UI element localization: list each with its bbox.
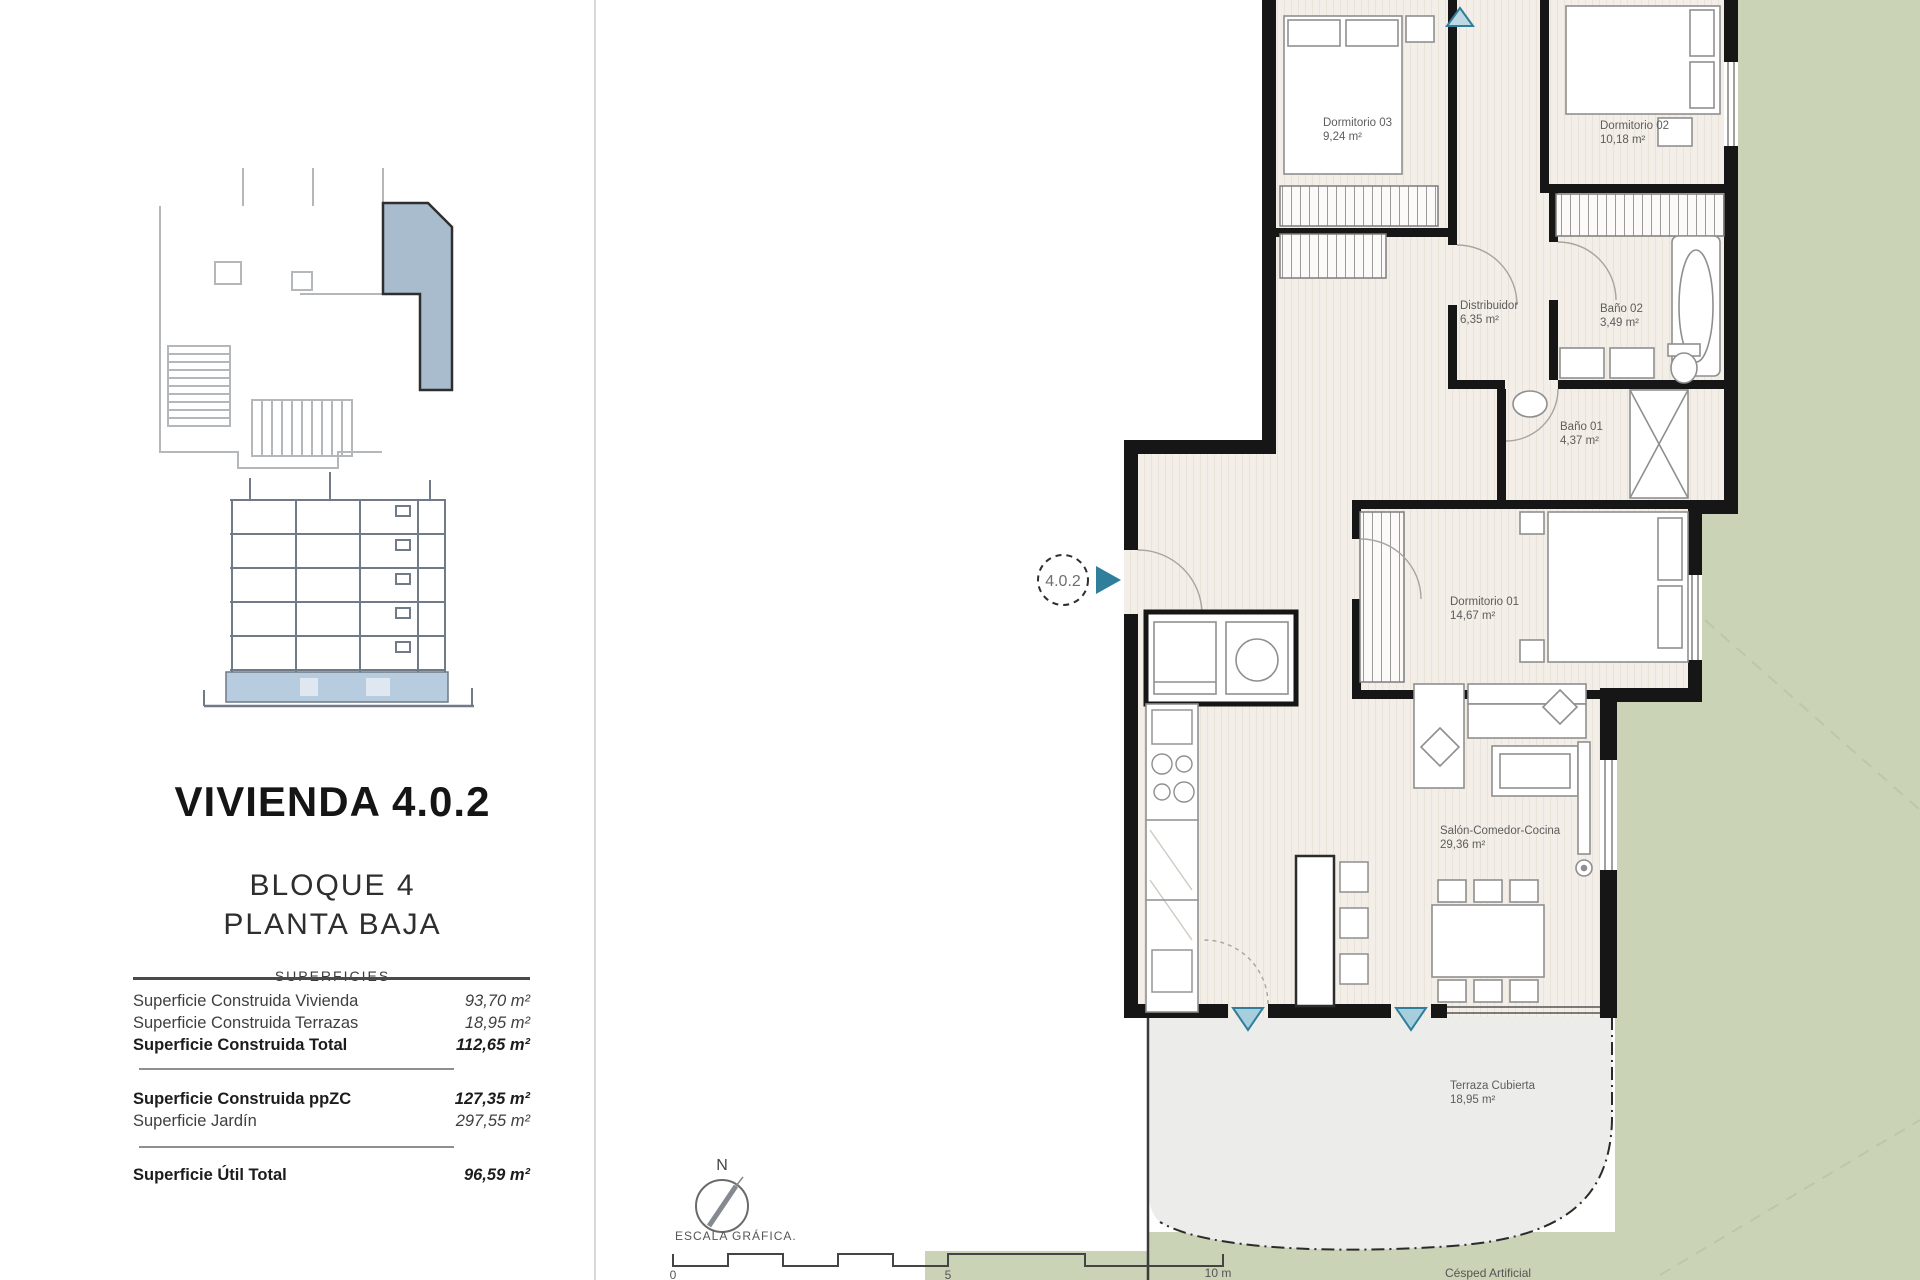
room-area-distribuidor: 6,35 m² <box>1460 314 1499 326</box>
section-band-gap <box>300 678 318 696</box>
surfaces-header: SUPERFICIES <box>60 968 605 984</box>
section-band-gap <box>366 678 390 696</box>
surface-value: 297,55 m² <box>456 1110 530 1132</box>
garden-label: Césped Artificial <box>1445 1266 1531 1280</box>
block-line: BLOQUE 4 <box>60 866 605 905</box>
room-label-terraza: Terraza Cubierta <box>1450 1080 1536 1092</box>
compass-north-label: N <box>716 1157 728 1174</box>
surfaces-table: Superficie Construida Vivienda 93,70 m² … <box>133 990 530 1186</box>
room-label-bano-02: Baño 02 <box>1600 303 1643 315</box>
surface-label: Superficie Construida Total <box>133 1034 347 1056</box>
room-label-bano-01: Baño 01 <box>1560 421 1603 433</box>
unit-marker-arrow-icon <box>1096 566 1121 594</box>
surface-row-ppzc: Superficie Construida ppZC 127,35 m² <box>133 1088 530 1110</box>
site-key-plan <box>160 168 383 468</box>
page-title: VIVIENDA 4.0.2 <box>60 778 605 826</box>
surface-row: Superficie Construida Vivienda 93,70 m² <box>133 990 530 1012</box>
section-ground-floor-band <box>226 672 448 702</box>
room-area-dormitorio-03: 9,24 m² <box>1323 131 1362 143</box>
floor-plan-sheet: 4.0.2 Dormitorio 03 9,24 m² Dormitorio 0… <box>0 0 1920 1280</box>
terrace-floor <box>1148 1017 1612 1250</box>
info-panel: VIVIENDA 4.0.2 BLOQUE 4 PLANTA BAJA SUPE… <box>60 778 605 984</box>
scale-tick-10: 10 m <box>1205 1266 1232 1280</box>
room-area-terraza: 18,95 m² <box>1450 1094 1496 1106</box>
room-area-salon: 29,36 m² <box>1440 839 1486 851</box>
surface-label: Superficie Útil Total <box>133 1164 287 1186</box>
surface-value: 96,59 m² <box>464 1164 530 1186</box>
surface-row: Superficie Jardín 297,55 m² <box>133 1110 530 1132</box>
scale-tick-5: 5 <box>945 1268 952 1280</box>
room-area-dormitorio-01: 14,67 m² <box>1450 610 1496 622</box>
building-section <box>230 472 446 672</box>
scale-tick-0: 0 <box>670 1268 677 1280</box>
surface-row-total: Superficie Construida Total 112,65 m² <box>133 1034 530 1056</box>
surface-label: Superficie Construida Terrazas <box>133 1012 358 1034</box>
north-compass: N <box>696 1157 748 1232</box>
surface-value: 18,95 m² <box>465 1012 530 1034</box>
surface-row-util-total: Superficie Útil Total 96,59 m² <box>133 1164 530 1186</box>
room-label-dormitorio-01: Dormitorio 01 <box>1450 596 1519 608</box>
unit-marker-label: 4.0.2 <box>1045 573 1081 590</box>
room-area-bano-01: 4,37 m² <box>1560 435 1599 447</box>
table-divider <box>139 1146 454 1148</box>
floor-line: PLANTA BAJA <box>60 905 605 944</box>
room-label-dormitorio-02: Dormitorio 02 <box>1600 120 1669 132</box>
surface-value: 112,65 m² <box>456 1034 530 1056</box>
surface-label: Superficie Construida Vivienda <box>133 990 358 1012</box>
table-divider <box>139 1068 454 1070</box>
room-label-salon: Salón-Comedor-Cocina <box>1440 825 1561 837</box>
surface-label: Superficie Jardín <box>133 1110 257 1132</box>
surface-value: 127,35 m² <box>455 1088 530 1110</box>
room-label-distribuidor: Distribuidor <box>1460 300 1518 312</box>
key-stairs <box>168 346 352 456</box>
scale-label: ESCALA GRÁFICA. <box>675 1228 797 1243</box>
surface-row: Superficie Construida Terrazas 18,95 m² <box>133 1012 530 1034</box>
surfaces-top-rule <box>133 977 530 980</box>
room-label-dormitorio-03: Dormitorio 03 <box>1323 117 1392 129</box>
room-area-dormitorio-02: 10,18 m² <box>1600 134 1646 146</box>
room-area-bano-02: 3,49 m² <box>1600 317 1639 329</box>
key-highlighted-unit <box>383 203 452 390</box>
surface-value: 93,70 m² <box>465 990 530 1012</box>
block-subtitle: BLOQUE 4 PLANTA BAJA <box>60 866 605 944</box>
unit-marker: 4.0.2 <box>1038 555 1121 605</box>
surface-label: Superficie Construida ppZC <box>133 1088 351 1110</box>
